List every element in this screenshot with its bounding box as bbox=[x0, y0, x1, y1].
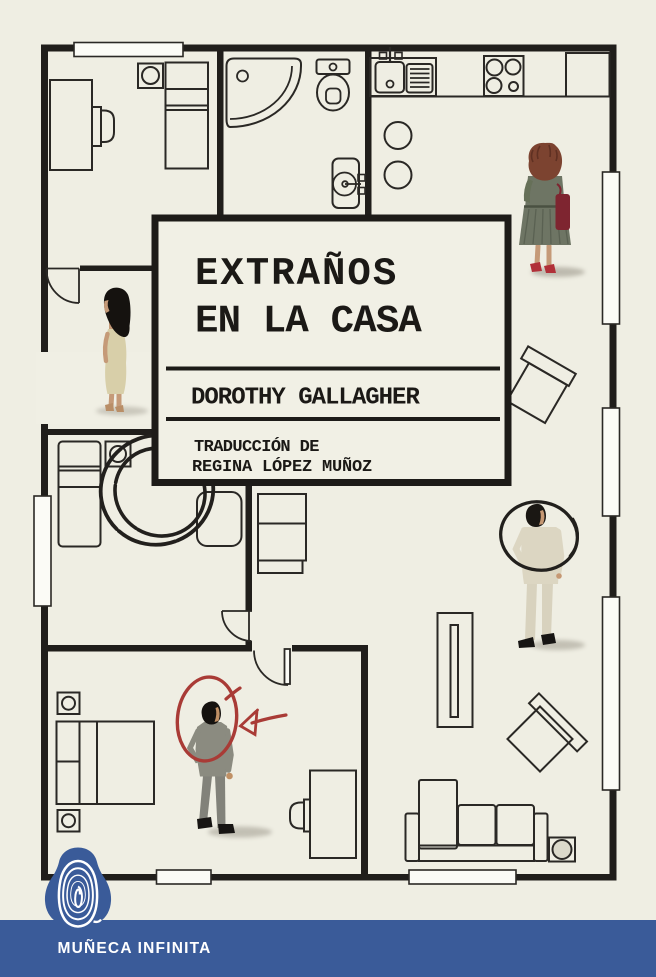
svg-text:REGINA LÓPEZ MUÑOZ: REGINA LÓPEZ MUÑOZ bbox=[192, 456, 372, 477]
svg-text:TRADUCCIÓN DE: TRADUCCIÓN DE bbox=[194, 437, 319, 457]
svg-text:EN LA CASA: EN LA CASA bbox=[195, 300, 422, 344]
svg-text:DOROTHY GALLAGHER: DOROTHY GALLAGHER bbox=[191, 385, 420, 412]
svg-text:EXTRAÑOS: EXTRAÑOS bbox=[195, 251, 398, 296]
svg-text:MUÑECA INFINITA: MUÑECA INFINITA bbox=[58, 939, 212, 957]
